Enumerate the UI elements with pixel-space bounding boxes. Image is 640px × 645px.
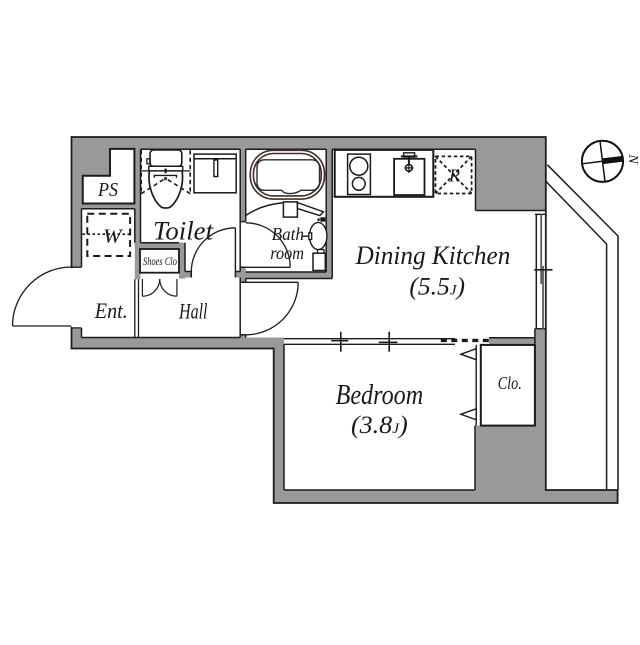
svg-text:Bath: Bath bbox=[272, 224, 305, 244]
svg-text:Dining Kitchen: Dining Kitchen bbox=[355, 240, 511, 270]
svg-text:PS: PS bbox=[97, 179, 118, 201]
svg-text:(5.5J): (5.5J) bbox=[409, 274, 465, 301]
svg-text:Hall: Hall bbox=[178, 298, 207, 323]
svg-text:W: W bbox=[103, 227, 123, 248]
svg-text:Clo.: Clo. bbox=[498, 373, 522, 393]
svg-text:Shoes Clo: Shoes Clo bbox=[143, 256, 177, 268]
svg-text:room: room bbox=[270, 243, 304, 263]
svg-text:Bedroom: Bedroom bbox=[336, 379, 424, 411]
svg-text:Ent.: Ent. bbox=[94, 298, 128, 323]
svg-text:N: N bbox=[625, 153, 640, 164]
svg-text:(3.8J): (3.8J) bbox=[351, 412, 408, 439]
svg-text:R: R bbox=[448, 165, 460, 185]
